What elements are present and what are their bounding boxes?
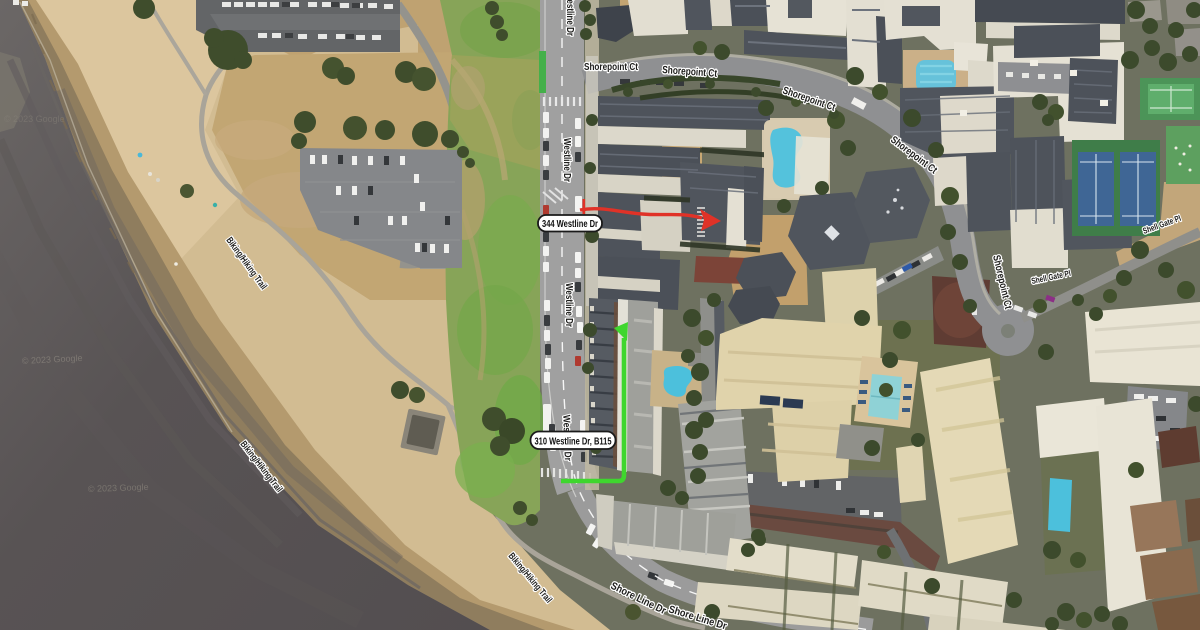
svg-text:Westline Dr: Westline Dr: [563, 283, 574, 327]
svg-text:Westline Dr: Westline Dr: [564, 0, 575, 36]
svg-text:310 Westline Dr, B115: 310 Westline Dr, B115: [535, 437, 612, 448]
svg-text:Westline Dr: Westline Dr: [561, 138, 572, 182]
svg-text:© 2023 Google: © 2023 Google: [88, 482, 149, 494]
svg-text:Shorepoint Ct: Shorepoint Ct: [584, 61, 638, 73]
svg-text:344 Westline Dr: 344 Westline Dr: [542, 219, 598, 230]
svg-text:© 2023 Google: © 2023 Google: [4, 114, 65, 124]
